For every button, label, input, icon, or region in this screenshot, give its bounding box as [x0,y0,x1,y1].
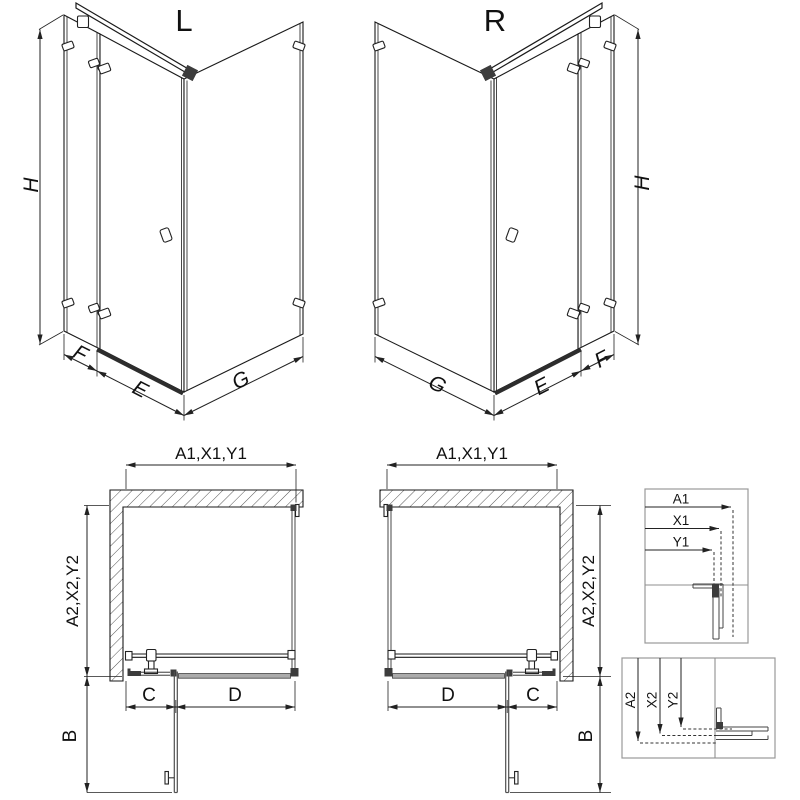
plan-right-c-label: C [526,685,540,706]
hinge-plan [145,650,158,674]
threshold-plan [179,674,291,679]
door-glass-panel [100,34,184,392]
diagram-canvas: L R H F E G H G E F A1,X1,Y1 A1,X1,Y1 A2… [0,0,800,800]
wall-hatched-right-plan [380,490,573,681]
plan-left-c-label: C [142,685,156,706]
wall-bracket-plan [128,669,142,677]
iso-left-title: L [175,3,192,38]
plan-right-depth-label: A2,X2,Y2 [579,555,598,627]
dim-label-g-left: G [228,367,253,395]
side-glass-panel [184,22,303,392]
plan-left-depth-label: A2,X2,Y2 [63,555,82,627]
detail-box-width [645,489,748,643]
wall-hatched-left-plan [110,490,303,681]
detail-a2-label: A2 [623,692,638,709]
open-door-plan [165,672,177,793]
iso-right-title: R [484,3,506,38]
detail-y2-label: Y2 [666,692,681,709]
detail-y1-label: Y1 [673,535,690,550]
support-bar-clamp [78,16,89,28]
dim-label-f-left: F [69,340,92,367]
detail-a1-label: A1 [673,492,690,507]
detail-x1-label: X1 [673,513,690,528]
dim-label-h-left: H [20,177,43,193]
shower-enclosure-dimension-diagram: L R H F E G H G E F A1,X1,Y1 A1,X1,Y1 A2… [0,0,800,800]
dim-label-h-right: H [631,175,654,191]
plan-right-width-label: A1,X1,Y1 [436,444,508,463]
plan-view-left-hardware [126,505,300,793]
plan-left-b-label: B [60,730,81,743]
plan-right-b-label: B [576,730,597,743]
plan-view-right-hardware [384,505,558,793]
plan-right-dimensions [387,465,611,793]
door-pivot-bracket [171,670,177,677]
plan-left-d-label: D [228,685,242,706]
detail-x2-label: X2 [645,692,660,709]
dim-label-f-right: F [591,346,614,373]
plan-left-width-label: A1,X1,Y1 [175,444,247,463]
door-handle-plan [165,772,168,785]
dim-label-g-right: G [425,371,450,399]
dim-label-e-left: E [129,376,153,403]
plan-right-d-label: D [441,685,455,706]
corner-bracket-plan [291,668,299,677]
